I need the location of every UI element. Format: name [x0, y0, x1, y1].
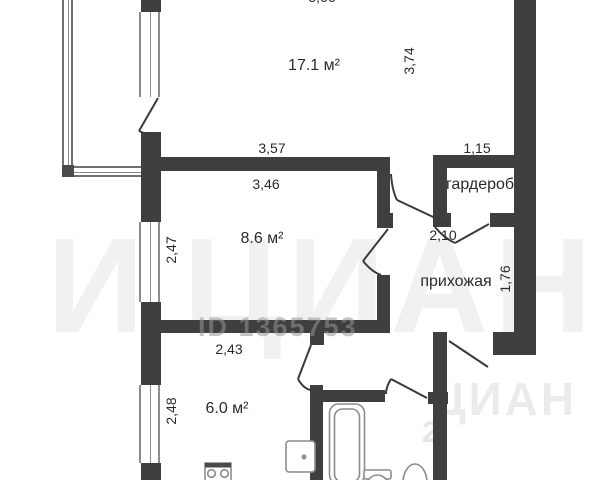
- room-label-kitchen: 6.0 м²: [205, 400, 248, 418]
- floor-plan: И ЦИАН ЦИАН 2: [0, 0, 600, 480]
- stove-back-panel: [205, 463, 231, 468]
- kitchen-sink: [286, 441, 315, 472]
- room-label-hallway: прихожая: [420, 273, 491, 291]
- stove-burner: [221, 470, 229, 478]
- dim-hall-width: 2,10: [429, 227, 456, 243]
- dim-room86-width: 3,46: [252, 176, 279, 192]
- balcony-door-arc: [139, 131, 158, 135]
- dim-wardrobe-width: 1,15: [463, 140, 490, 156]
- bathtub-inner: [335, 409, 360, 480]
- dim-kitchen-width: 2,43: [215, 341, 242, 357]
- room171-door-arc: [391, 174, 397, 200]
- room86-door-leaf: [363, 229, 388, 261]
- dim-kitchen-depth: 2,48: [163, 397, 179, 424]
- dim-room86-depth: 2,47: [163, 236, 179, 263]
- dim-top-width: 5,66: [308, 0, 335, 5]
- room171-door-leaf: [397, 200, 446, 223]
- wardrobe-door-leaf: [455, 224, 489, 243]
- room-label-wardrobe: гардероб: [446, 176, 514, 194]
- kitchen-sink-drain: [302, 455, 307, 460]
- room86-door-arc: [363, 261, 381, 275]
- dim-wall-357: 3,57: [258, 140, 285, 156]
- dim-hall-depth: 1,76: [497, 265, 513, 292]
- bathroom-sink: [403, 464, 427, 480]
- kitchen-door-leaf: [298, 345, 311, 379]
- room-label-86: 8.6 м²: [240, 230, 283, 248]
- balcony-door-leaf: [139, 98, 158, 131]
- kitchen-door-arc: [298, 379, 310, 390]
- bathroom-door-leaf: [391, 379, 427, 398]
- bathroom-door-arc: [386, 379, 391, 394]
- room-label-171: 17.1 м²: [288, 57, 340, 75]
- entrance-door-leaf: [449, 341, 488, 367]
- stove-burner: [208, 470, 216, 478]
- dim-room171-depth: 3,74: [401, 47, 417, 74]
